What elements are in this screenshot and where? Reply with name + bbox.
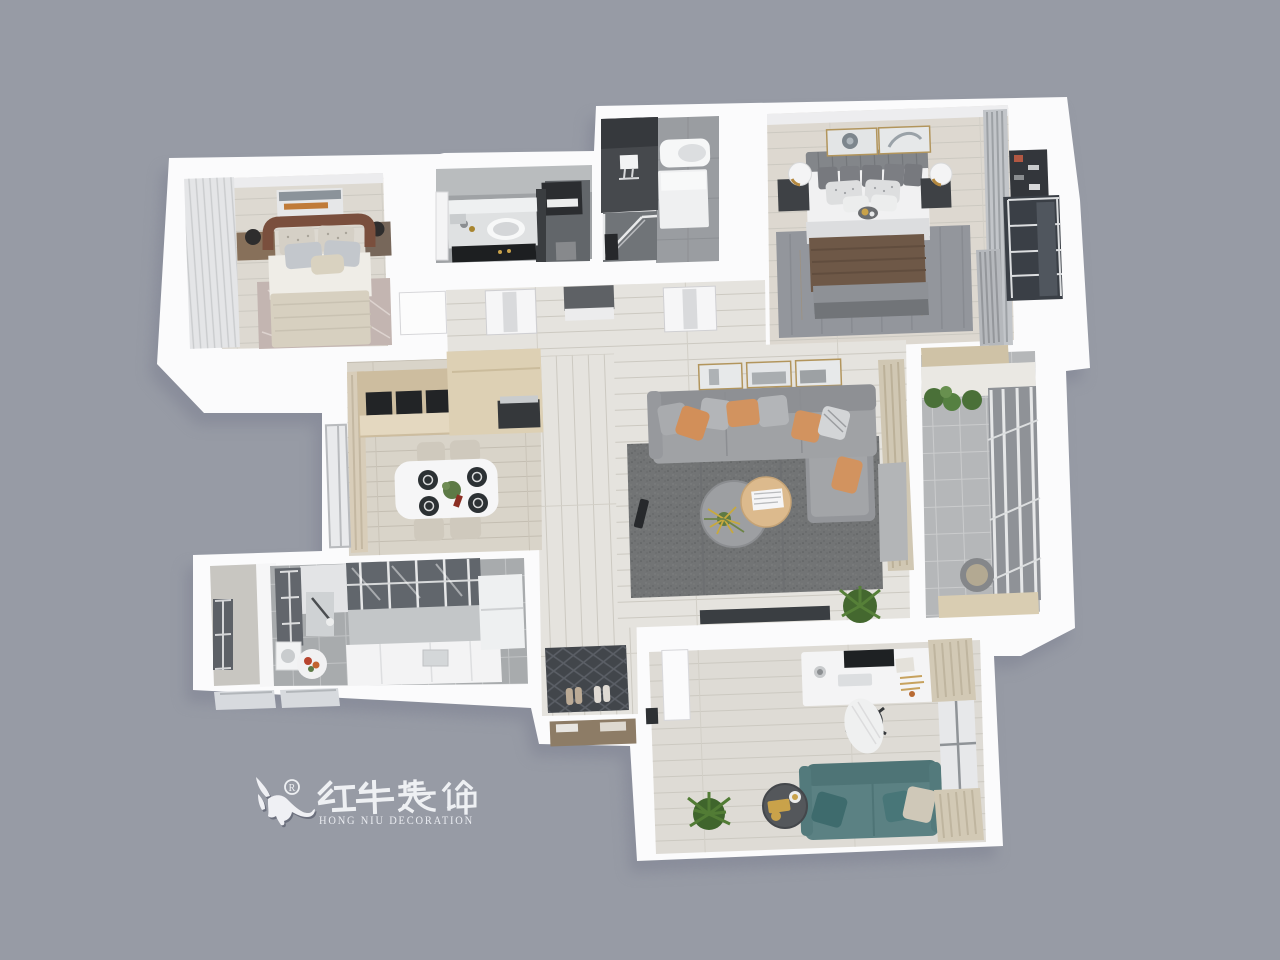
svg-text:HONG NIU DECORATION: HONG NIU DECORATION (319, 815, 474, 827)
svg-text:R: R (289, 783, 296, 794)
